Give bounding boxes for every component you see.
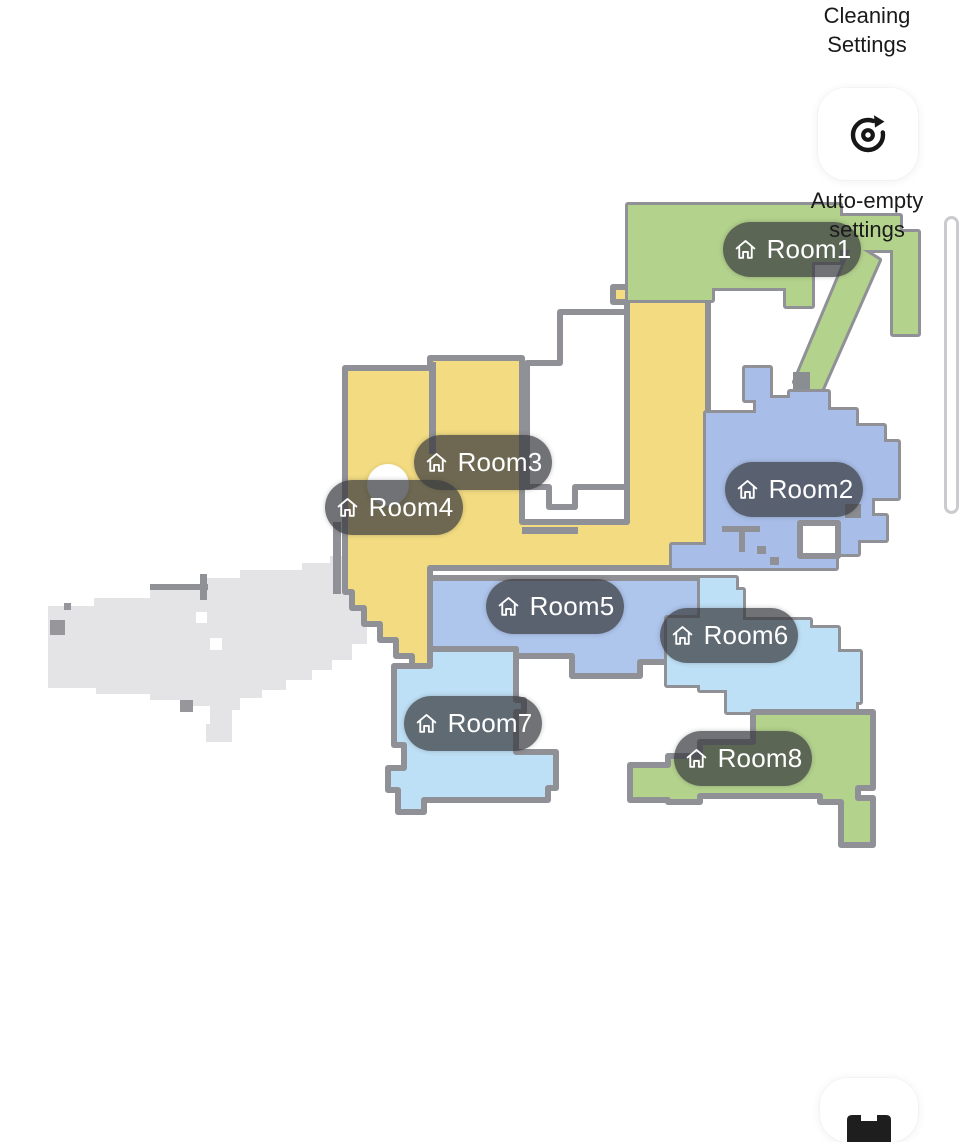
unexplored-area	[48, 556, 372, 742]
cleaning-settings-label: Cleaning Settings	[792, 1, 942, 59]
home-icon	[735, 477, 760, 502]
room-label-room4[interactable]: Room4	[325, 480, 463, 535]
room-label-text: Room2	[769, 474, 854, 505]
room-label-room7[interactable]: Room7	[404, 696, 542, 751]
map-manage-button[interactable]	[820, 1078, 918, 1142]
home-icon	[670, 623, 695, 648]
room-label-text: Room7	[448, 708, 533, 739]
room-label-text: Room5	[530, 591, 615, 622]
wall-segment	[522, 527, 578, 534]
room-label-text: Room8	[718, 743, 803, 774]
room-label-room6[interactable]: Room6	[660, 608, 798, 663]
room-label-room5[interactable]: Room5	[486, 579, 624, 634]
wall-segment	[739, 532, 745, 552]
rotate-map-button[interactable]	[818, 88, 918, 180]
home-icon	[733, 237, 758, 262]
home-icon	[414, 711, 439, 736]
room-label-room8[interactable]: Room8	[674, 731, 812, 786]
home-icon	[424, 450, 449, 475]
map-cutout	[800, 523, 838, 556]
auto-empty-settings-label: Auto-empty settings	[792, 186, 942, 244]
home-icon	[335, 495, 360, 520]
dock-marker	[793, 372, 810, 389]
wall-segment	[722, 526, 760, 532]
wall-segment	[757, 546, 766, 554]
home-icon	[496, 594, 521, 619]
map-scrollbar[interactable]	[944, 216, 959, 514]
room-label-room2[interactable]: Room2	[725, 462, 863, 517]
map-icon	[845, 1112, 893, 1142]
wall-segment	[333, 522, 341, 594]
room-label-text: Room6	[704, 620, 789, 651]
wall-segment	[770, 557, 779, 565]
room-label-text: Room4	[369, 492, 454, 523]
rotate-map-icon	[844, 110, 892, 158]
room-label-text: Room3	[458, 447, 543, 478]
home-icon	[684, 746, 709, 771]
